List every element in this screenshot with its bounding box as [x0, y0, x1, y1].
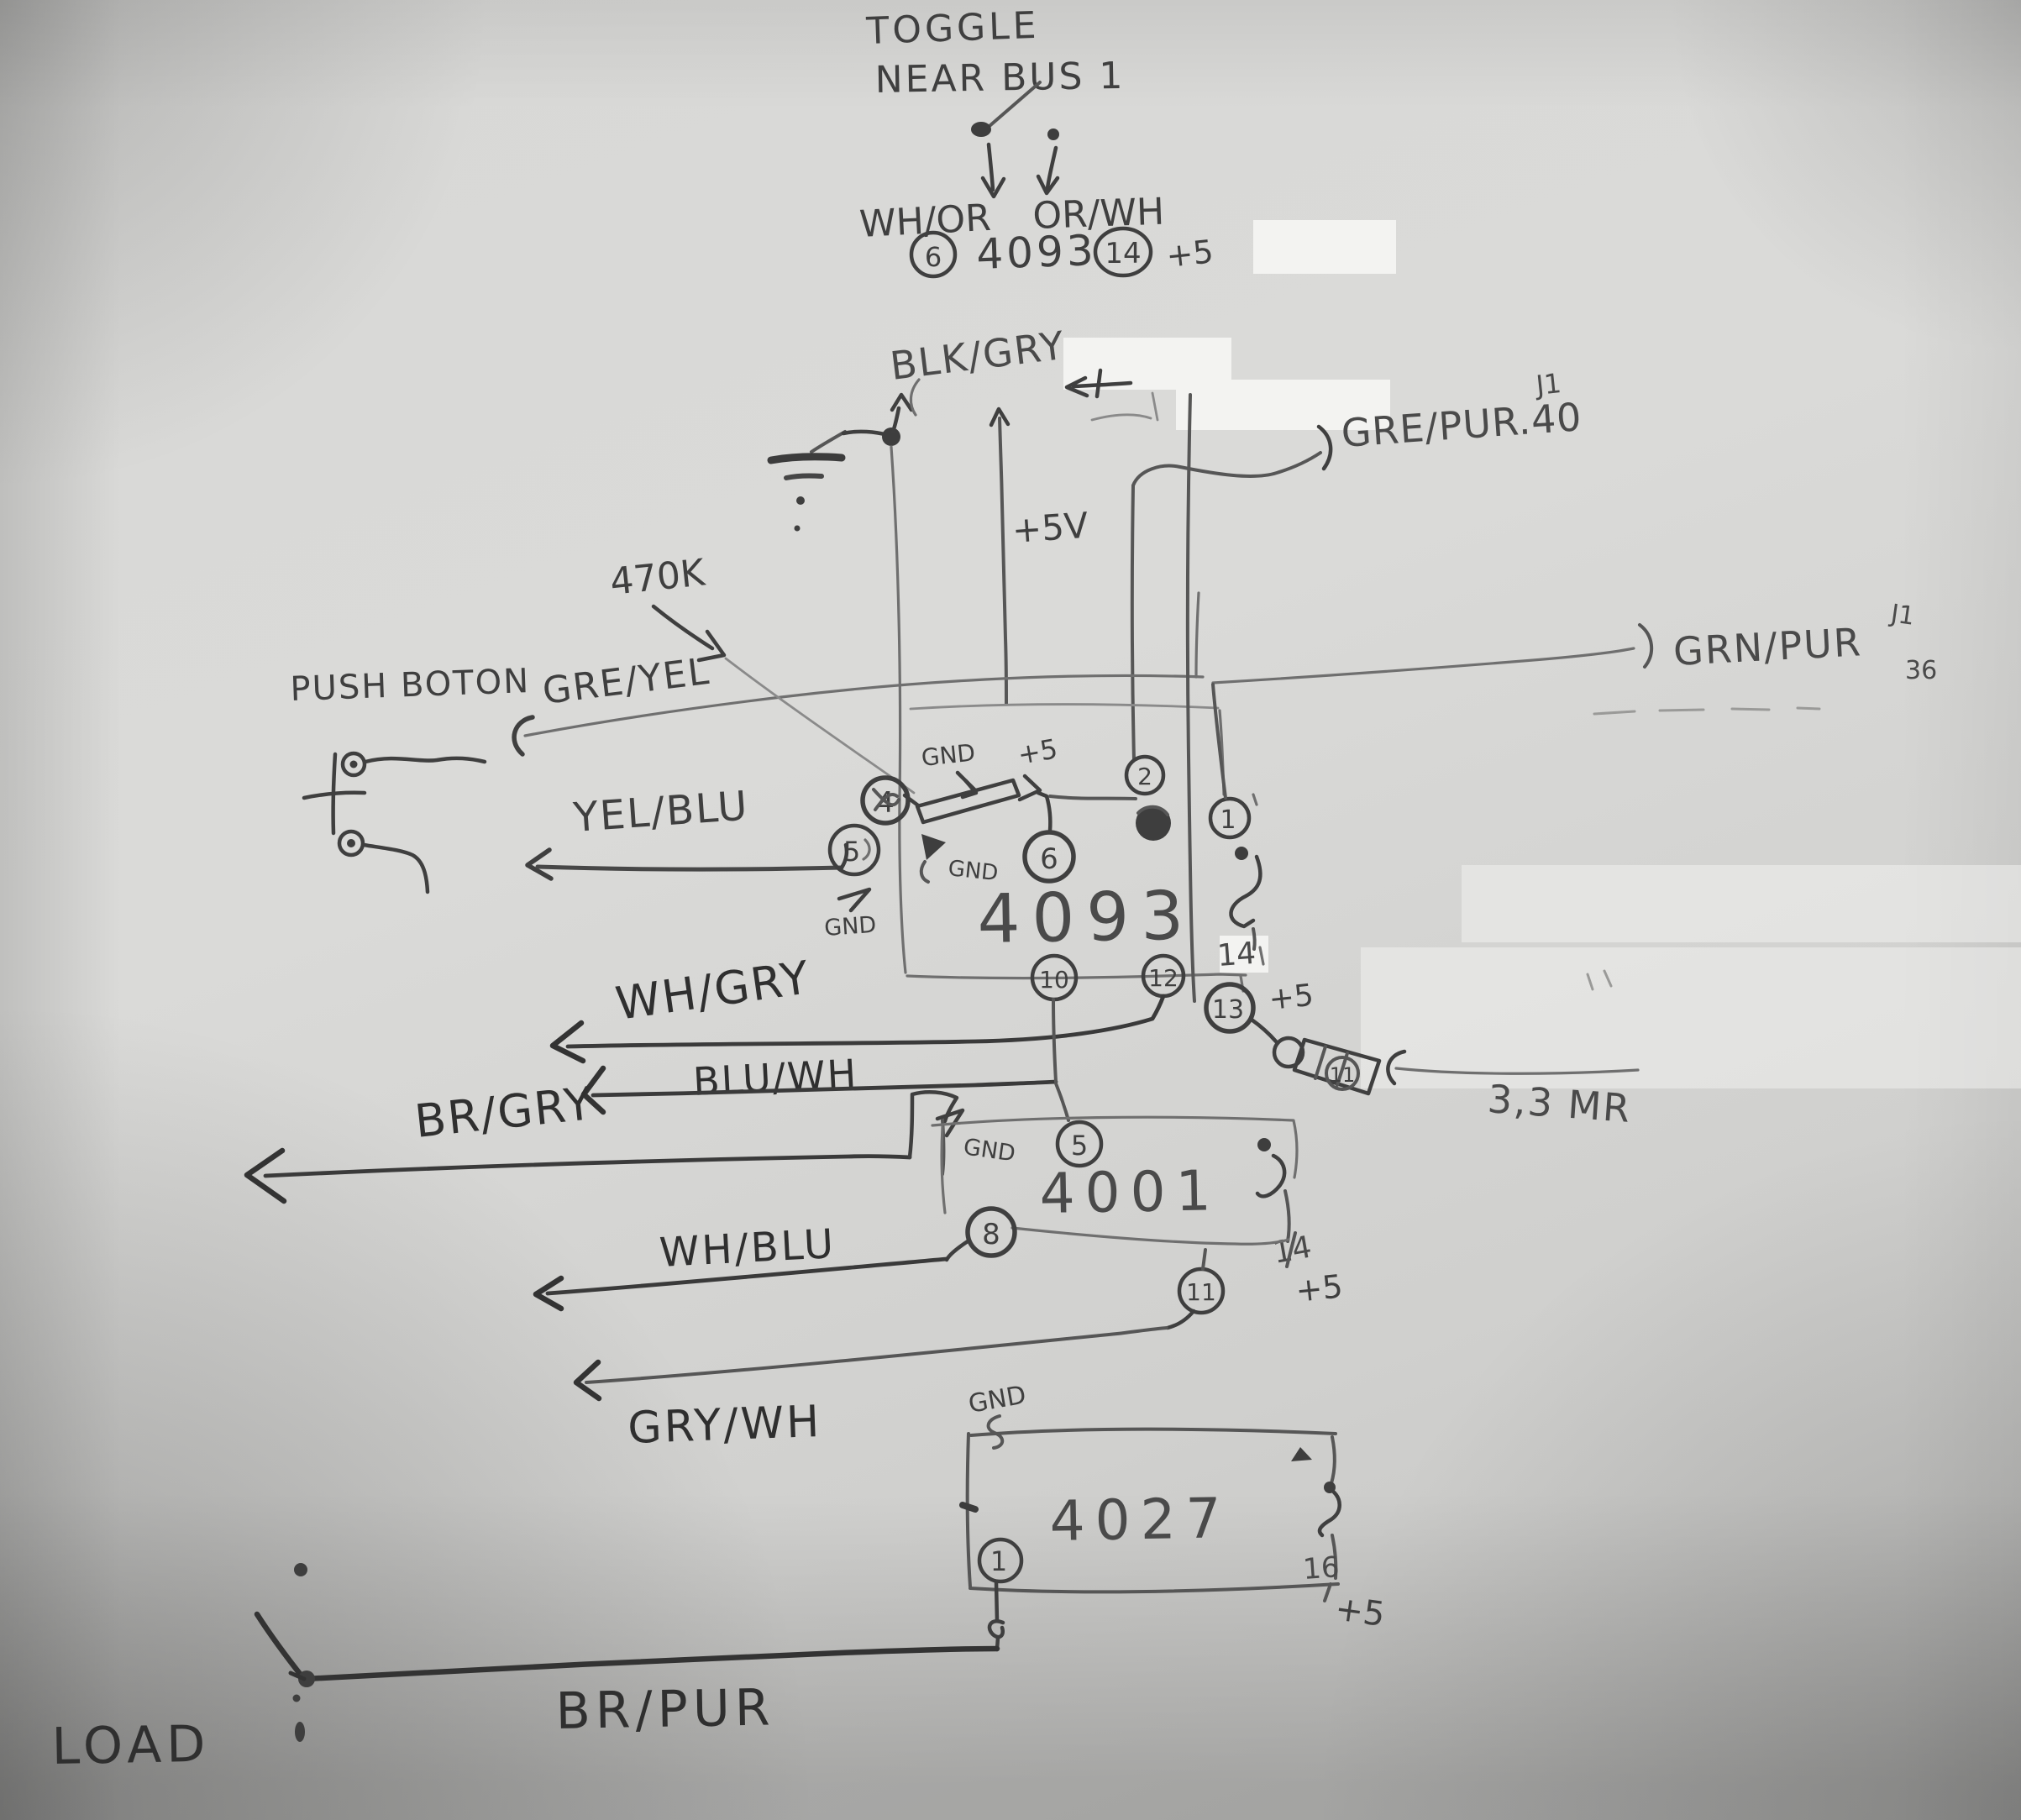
tick-mark: [1325, 1584, 1331, 1601]
chip-name-4093: 4093: [977, 876, 1196, 958]
capacitor-squiggle: [1257, 1156, 1284, 1196]
pin-label-14: 14: [1216, 936, 1257, 973]
connector-arrow-head: [1640, 625, 1651, 667]
gnd-label: GND: [823, 912, 877, 941]
wire: [1168, 1311, 1194, 1328]
wire-to-pin6: [1038, 793, 1050, 831]
wire-right: [1050, 796, 1136, 799]
ground-dot: [796, 496, 805, 505]
gnd-label: GND: [966, 1380, 1028, 1419]
pin1-riser: [1213, 684, 1226, 798]
ground-stem: [811, 432, 845, 452]
gre-yel-wire: GRE/YEL: [514, 650, 1203, 754]
pin-number: 14: [1105, 237, 1141, 270]
junction-dot: [882, 427, 900, 446]
wire-label-gry-wh: GRY/WH: [627, 1397, 822, 1454]
wh-blu-wire: WH/BLU: [536, 1220, 947, 1309]
gnd-label: GND: [962, 1134, 1017, 1167]
gry-wh-wire: GRY/WH: [576, 1328, 1167, 1454]
contact-dot: [295, 1722, 305, 1742]
vertical-wire: [891, 447, 906, 973]
wire: [306, 1649, 997, 1679]
arrow-stem: [654, 606, 712, 648]
pin-number: 8: [982, 1218, 1000, 1251]
wire-riser: [1053, 999, 1056, 1082]
yel-blu-wire: YEL/BLU: [528, 783, 847, 879]
chip-name-4001: 4001: [1039, 1158, 1221, 1226]
chip-outline-right: [1331, 1437, 1335, 1483]
gnd-curl: [921, 862, 928, 882]
capacitor-squiggle: [1231, 857, 1260, 926]
load-switch: LOAD BR/PUR: [51, 1563, 997, 1776]
wire-riser: [1132, 485, 1134, 760]
resistor-value-3m3: 3,3 MR: [1486, 1076, 1633, 1131]
gnd-arrow-head: [963, 781, 976, 797]
pin-loop: [990, 1621, 1003, 1637]
wire-label-br-gry: BR/GRY: [412, 1077, 596, 1148]
wire-label-blu-wh: BLU/WH: [692, 1051, 859, 1104]
push-button-label: PUSH BOTON: [290, 662, 531, 709]
wire-label-br-pur: BR/PUR: [555, 1678, 775, 1741]
chip-outline-bottom: [1012, 1228, 1289, 1244]
schematic-drawing: TOGGLE NEAR BUS 1 WH/OR OR/WH 6 4093 14 …: [0, 0, 2021, 1820]
contact-dot: [350, 761, 358, 768]
connector-label-j1: J1: [1533, 367, 1563, 401]
chip-outline-top: [971, 1429, 1336, 1435]
up-arrow-stem: [893, 408, 899, 432]
toggle-note: TOGGLE NEAR BUS 1: [865, 4, 1126, 197]
pin-tick: [963, 1505, 975, 1509]
ground-bar: [771, 457, 842, 460]
faint-mark: [1092, 415, 1151, 420]
supply-label-5v: +5V: [1010, 505, 1089, 551]
wire: [265, 1157, 910, 1176]
push-button: PUSH BOTON: [290, 662, 531, 892]
pin-number: 13: [1212, 995, 1244, 1025]
faint-wire: [726, 658, 914, 793]
chip-outline-top: [911, 705, 1218, 709]
toggle-wire-labels: WH/OR OR/WH 6 4093 14 +5: [858, 191, 1215, 279]
wire: [1213, 648, 1634, 683]
toggle-note-line1: TOGGLE: [865, 4, 1041, 53]
wire-label-yel-blu: YEL/BLU: [571, 783, 750, 842]
pin-number: 5: [843, 836, 860, 868]
tick-mark: [1253, 795, 1257, 805]
wire-label-blk-gry: BLK/GRY: [888, 323, 1068, 389]
plus5-wire: [1000, 418, 1006, 704]
scanned-schematic-page: TOGGLE NEAR BUS 1 WH/OR OR/WH 6 4093 14 …: [0, 0, 2021, 1820]
load-label: LOAD: [51, 1715, 211, 1776]
ground-symbol-top: [771, 427, 900, 532]
switch-blade: [257, 1614, 303, 1678]
wire-label-wh-gry: WH/GRY: [612, 951, 814, 1031]
pin-number: 1: [1220, 805, 1236, 835]
wire: [843, 432, 888, 435]
resistor-body: [917, 780, 1019, 822]
pin-number: 11: [1330, 1063, 1356, 1087]
chip-name-4027: 4027: [1049, 1486, 1231, 1554]
connector-arrow-head: [1319, 427, 1331, 469]
toggle-contact-dot: [971, 122, 991, 137]
up-arrow-head: [892, 395, 911, 410]
wire: [538, 867, 842, 869]
pin-number: 10: [1039, 966, 1069, 994]
contact-dot: [293, 1695, 301, 1702]
faint-dashes: [1594, 708, 1819, 714]
gnd-arrow-icon: [839, 889, 869, 910]
faint-mark: [1152, 393, 1157, 420]
connector-pin-36: 36: [1905, 656, 1937, 685]
pin-label-16: 16: [1302, 1550, 1341, 1587]
pin-stub: [1203, 1250, 1205, 1269]
ground-dot: [795, 526, 801, 532]
pin-number: 12: [1148, 964, 1178, 992]
left-arrow-head: [528, 850, 551, 879]
left-arrow-head: [553, 1023, 583, 1061]
pin-number: 11: [1186, 1278, 1216, 1306]
contact-dot: [294, 1563, 307, 1576]
pin-number: 6: [1040, 842, 1058, 876]
wire: [365, 758, 485, 762]
wire-hook: [947, 1241, 968, 1260]
toggle-contact-dot: [1047, 129, 1059, 140]
gnd-arrow-icon: [921, 834, 946, 860]
pin-number: 5: [1071, 1130, 1088, 1162]
pin-number: 1: [990, 1545, 1007, 1577]
white-patch: [1253, 220, 1396, 274]
scribble: [864, 840, 869, 859]
junction-dot: [1235, 847, 1248, 860]
pin-number: 6: [925, 241, 942, 273]
wire-label-wh-or: WH/OR: [858, 197, 992, 246]
gnd-label: GND: [947, 856, 999, 886]
pin-leg: [996, 1582, 997, 1621]
ic-4001: GND 5 4001 14 +5 8 11: [932, 1110, 1345, 1328]
toggle-note-line2: NEAR BUS 1: [874, 55, 1126, 102]
parallel-wire-segment: [1196, 593, 1199, 677]
ground-bar: [786, 475, 822, 478]
gnd-label: GND: [920, 738, 976, 772]
pin-dot: [1257, 1138, 1271, 1151]
resistor-value-470k: 470K: [608, 551, 708, 604]
pin-mark: [1291, 1447, 1312, 1461]
wire-label-wh-blu: WH/BLU: [659, 1220, 837, 1277]
photocopy-artifacts: [1063, 220, 2021, 1088]
plus5-label: +5: [1294, 1267, 1344, 1309]
plus5-label: +5: [1016, 732, 1060, 771]
resistor-arrow-head: [1020, 776, 1040, 800]
wire-label-grn-pur: GRN/PUR: [1672, 619, 1863, 674]
chip-ref-4093: 4093: [975, 226, 1097, 279]
capacitor-squiggle: [1320, 1490, 1340, 1535]
supply-label: +5: [1164, 233, 1215, 275]
contact-dot: [347, 839, 355, 847]
ic-4027: GND 4027 16 +5 1: [963, 1380, 1387, 1650]
light-band: [1462, 865, 2021, 942]
wire-label-gre-yel: GRE/YEL: [540, 650, 712, 713]
wire: [364, 845, 428, 892]
wire: [1252, 1020, 1276, 1041]
down-arrow: [989, 144, 993, 190]
wire: [1133, 453, 1320, 485]
plus5-label: +5: [1268, 978, 1315, 1017]
wire-drop: [1056, 1083, 1068, 1120]
connector-label-j1: J1: [1887, 599, 1917, 632]
plus5-label: +5: [1333, 1589, 1388, 1634]
light-band: [1361, 947, 2021, 1088]
pin-number: 2: [1137, 763, 1152, 790]
wire: [586, 1328, 1167, 1382]
chip-outline-bottom: [970, 1584, 1338, 1592]
